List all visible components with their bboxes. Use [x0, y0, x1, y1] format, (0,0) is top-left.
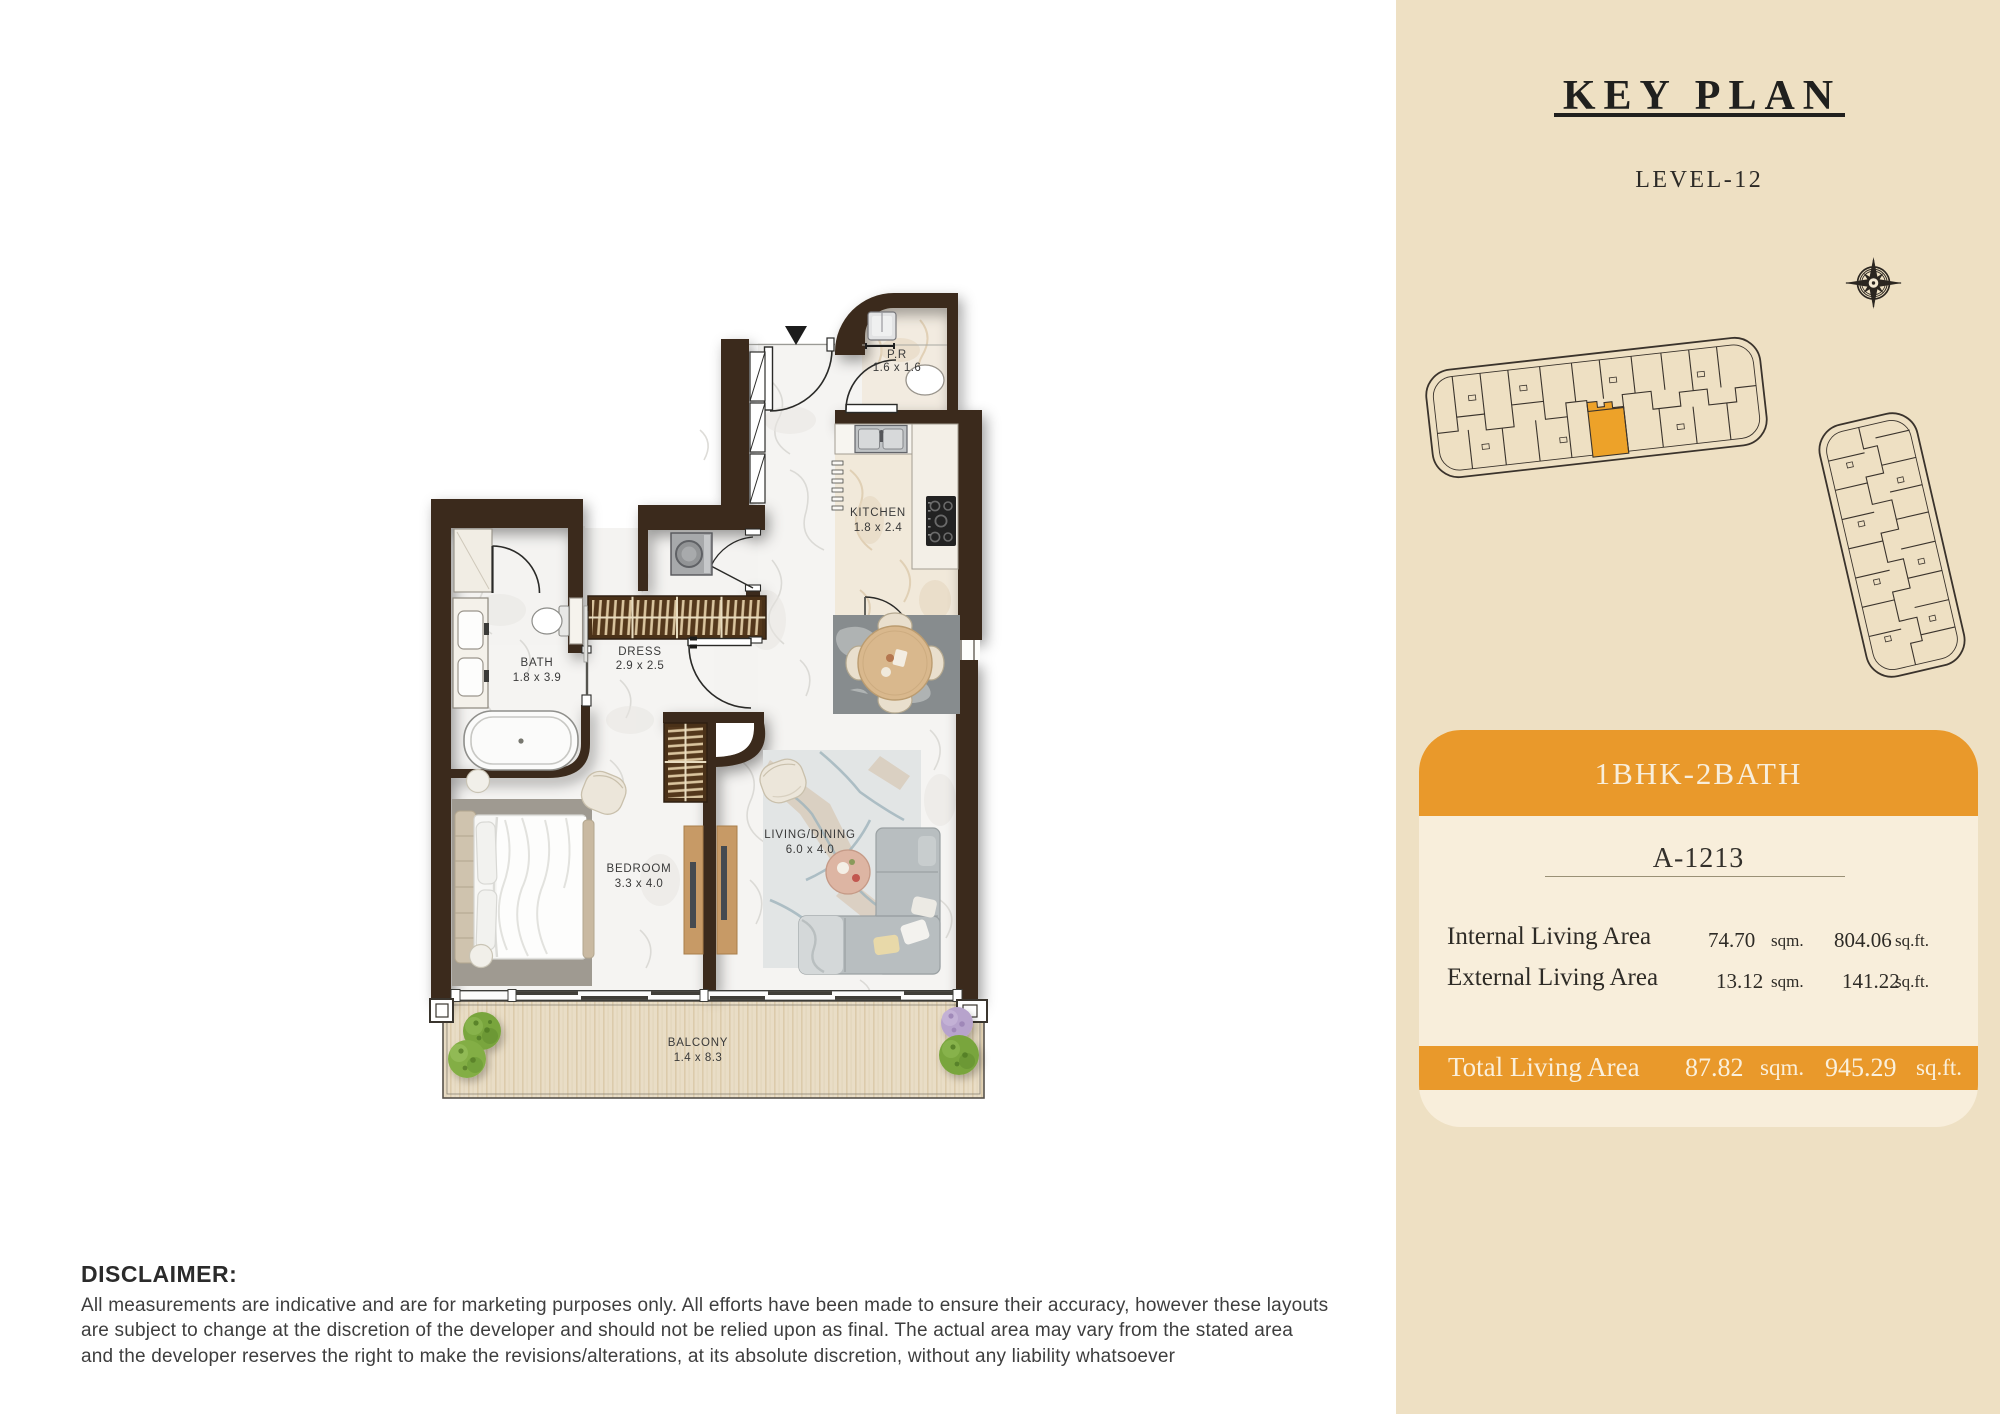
svg-text:6.0 x 4.0: 6.0 x 4.0 [786, 844, 835, 856]
svg-text:3.3 x 4.0: 3.3 x 4.0 [615, 878, 664, 890]
svg-text:LIVING/DINING: LIVING/DINING [764, 829, 856, 841]
svg-text:P.R: P.R [887, 349, 907, 361]
svg-text:BATH: BATH [520, 657, 553, 669]
svg-text:1.6 x 1.6: 1.6 x 1.6 [873, 362, 922, 374]
svg-text:1.4 x 8.3: 1.4 x 8.3 [674, 1052, 723, 1064]
svg-text:KITCHEN: KITCHEN [850, 507, 906, 519]
svg-text:2.9 x 2.5: 2.9 x 2.5 [616, 660, 665, 672]
svg-text:1.8 x 2.4: 1.8 x 2.4 [854, 522, 903, 534]
svg-text:BEDROOM: BEDROOM [606, 863, 671, 875]
svg-text:DRESS: DRESS [618, 646, 662, 658]
svg-text:1.8 x 3.9: 1.8 x 3.9 [513, 672, 562, 684]
svg-text:BALCONY: BALCONY [668, 1037, 729, 1049]
